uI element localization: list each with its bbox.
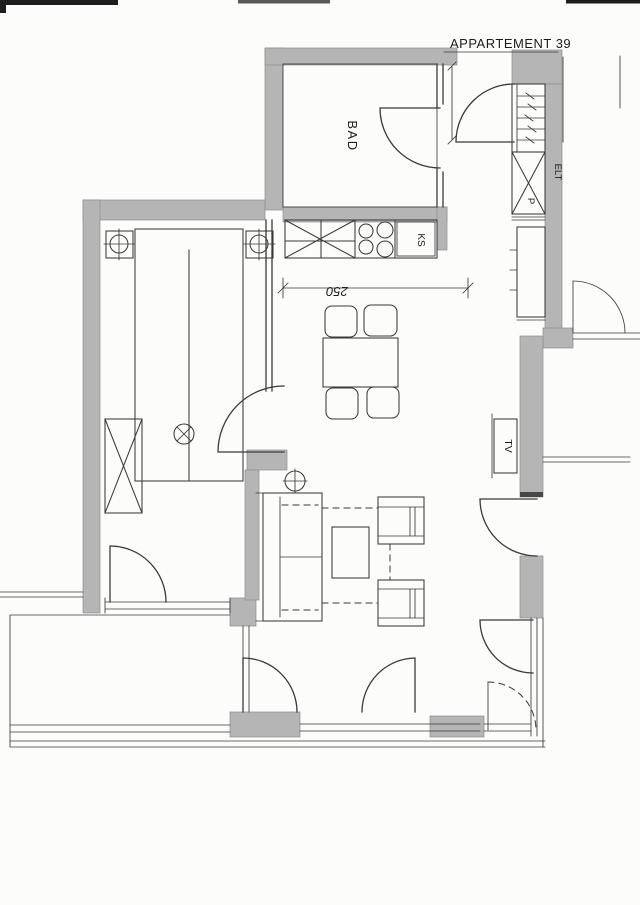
kitchen-dimension-line: [278, 278, 473, 298]
scan-artifact: [0, 0, 6, 13]
wall-bottom-pier-left: [230, 712, 300, 737]
armchair-top: [378, 497, 424, 544]
sink-bowl: [359, 240, 373, 254]
kitchen-dimension-value: 250: [325, 284, 348, 299]
wall-right-pier: [520, 556, 543, 618]
pantry-label: P: [525, 198, 536, 204]
wall-bedroom-living-divider: [245, 470, 259, 600]
jut-left-wall-lines: [243, 626, 249, 712]
bedroom-balcony-door-swing: [110, 546, 166, 602]
coffee-table: [332, 527, 369, 578]
balcony-door-right-swing: [362, 658, 415, 712]
dining-area: [323, 305, 399, 419]
floorplan-drawing: APPARTEMENT 39 BAD KS 250 ELT P TV: [0, 0, 640, 905]
sideboard-ticks: [510, 250, 545, 320]
bedroom-right-wall-lines: [266, 220, 272, 391]
hallway-window-door-swing: [480, 499, 537, 556]
pantry-closet-cross: [512, 152, 545, 214]
apartment-title: APPARTEMENT 39: [450, 36, 571, 51]
wall-right-upper: [545, 84, 562, 336]
scan-artifact: [0, 0, 118, 5]
dining-chair: [325, 306, 357, 337]
armchair-top-detail: [378, 507, 424, 536]
bottom-window-band: [300, 724, 531, 731]
living-room: [256, 414, 517, 626]
balcony-door-left-swing: [243, 658, 297, 712]
sideboard: [517, 227, 545, 317]
wardrobe-cross: [105, 419, 142, 513]
bedroom-window-band: [105, 598, 230, 613]
wall-kitchen-end-stub: [437, 207, 447, 250]
stove-burner: [377, 222, 393, 238]
wall-bedroom-door-stub: [247, 450, 287, 470]
dining-chair: [364, 305, 397, 336]
living-ceiling-light-cross: [283, 469, 307, 493]
armchair-bottom-detail: [378, 589, 424, 618]
wall-top-right-corner: [512, 50, 562, 84]
bathroom-right-wall-lines: [437, 64, 443, 207]
sofa-cushion-dashes: [282, 505, 318, 610]
coat-closet-shelves: [517, 84, 545, 152]
exterior-door-arc: [573, 281, 625, 333]
living-right-door-swing: [480, 620, 533, 673]
bathroom-door-swing: [380, 108, 440, 168]
wall-bedroom-top: [83, 200, 265, 220]
floorplan-page: APPARTEMENT 39 BAD KS 250 ELT P TV: [0, 0, 640, 905]
kitchen: [278, 62, 473, 298]
right-window-band: [531, 618, 543, 747]
wall-outer-left: [83, 200, 100, 613]
bathroom-label: BAD: [345, 120, 360, 151]
wall-jut-corner: [230, 598, 256, 626]
scan-artifacts: [0, 0, 640, 13]
nightstand-right-lamp-cross: [244, 229, 275, 260]
wall-right-mid: [520, 336, 543, 497]
sofa-detail-lines: [256, 493, 322, 621]
dining-chair: [367, 387, 399, 418]
entrance-dimension-line: [448, 62, 456, 144]
wall-end-cap: [520, 492, 543, 497]
tv-label: TV: [502, 439, 514, 452]
pantry-closet-base-lines: [512, 217, 545, 220]
stove-burner: [377, 241, 393, 257]
sink-bowl: [359, 224, 373, 238]
building-outline-top-right: [563, 56, 620, 142]
fridge-label: KS: [415, 233, 426, 247]
kitchen-cabinet-cross: [285, 220, 355, 258]
living-right-lower-door-arc: [488, 682, 536, 730]
bedroom-door-swing: [218, 386, 284, 452]
armchair-bottom: [378, 580, 424, 626]
wall-bathroom-top: [265, 48, 457, 65]
walls: [83, 48, 573, 737]
wall-right-notch: [543, 328, 573, 348]
scan-artifact: [238, 0, 330, 4]
doors: [110, 84, 537, 730]
entrance-door-swing: [456, 84, 514, 142]
dining-table: [323, 338, 398, 387]
nightstand-left-lamp-cross: [104, 229, 135, 260]
electrical-label: ELT: [552, 164, 563, 181]
scan-artifact: [566, 0, 640, 4]
dining-chair: [326, 388, 358, 419]
exterior-ground-line-left: [0, 592, 83, 597]
wall-bottom-pier-right: [430, 716, 484, 737]
wall-bathroom-left: [265, 48, 283, 210]
